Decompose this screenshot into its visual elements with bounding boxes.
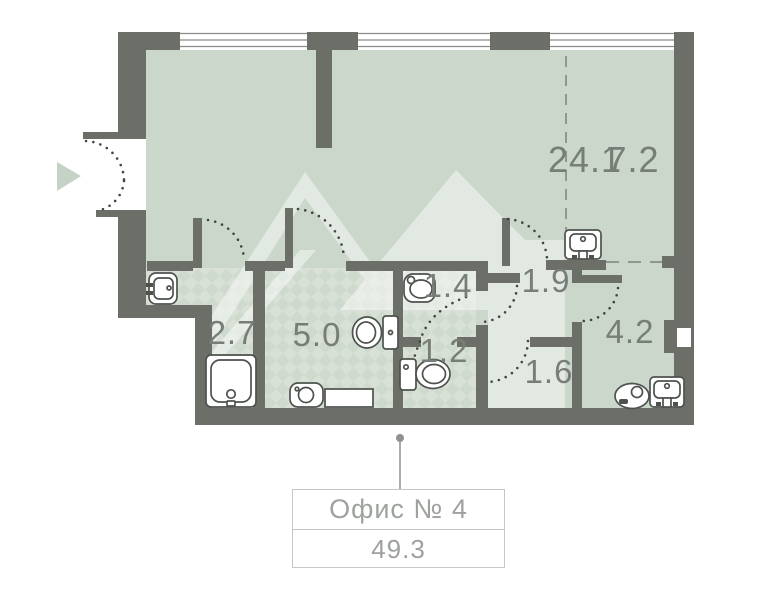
- wall-segment: [572, 275, 622, 283]
- room-label-5-0: 5.0: [293, 316, 342, 353]
- floor-plan-page: 24.1 7.2 2.7 5.0 1.4 1.2 1.9 1.6 4.2 Офи…: [0, 0, 760, 600]
- entrance-jamb-bottom: [96, 210, 146, 217]
- sink-tap: [408, 277, 415, 284]
- sink-pedestal: [579, 251, 587, 259]
- sink-tap: [146, 291, 153, 295]
- washer-dial: [295, 387, 299, 391]
- washer-drum: [299, 388, 314, 403]
- wall-1-9-1-6: [530, 337, 572, 347]
- counter-5-0: [325, 389, 373, 407]
- unit-label-box: Офис № 4 49.3: [292, 489, 505, 568]
- door-leaf: [193, 218, 202, 268]
- sink-icon-4-2: [650, 377, 684, 407]
- sink-mount: [673, 402, 678, 406]
- wall-segment: [662, 256, 676, 268]
- sink-mount: [656, 402, 661, 406]
- shower-tray-icon: [206, 355, 256, 407]
- toilet-bowl-inner: [357, 322, 376, 343]
- wall-pilaster: [664, 320, 677, 353]
- wall-left-lower: [118, 213, 146, 312]
- washer-icon-4-2: [615, 384, 649, 409]
- sink-tap: [665, 384, 670, 389]
- room-label-1-4: 1.4: [424, 267, 473, 304]
- window: [180, 32, 307, 50]
- sink-mount: [572, 255, 577, 259]
- washer-body: [615, 384, 649, 409]
- unit-name: Офис № 4: [293, 490, 504, 530]
- outside-mask: [100, 318, 195, 430]
- door-leaf: [502, 218, 510, 266]
- wall-bottom: [195, 408, 694, 425]
- wall-niche: [677, 328, 691, 347]
- wall-segment: [482, 273, 520, 283]
- toilet-button: [389, 331, 393, 335]
- wall-right: [674, 32, 694, 425]
- room-label-1-6: 1.6: [525, 353, 574, 390]
- entrance-arrow-icon: [57, 162, 81, 191]
- entrance-door-arc: [86, 141, 124, 180]
- washer-drum: [632, 387, 643, 398]
- wall-1-6-4-2: [572, 322, 582, 408]
- window: [550, 32, 675, 50]
- sink-drain: [167, 286, 171, 290]
- sink-tap: [146, 283, 153, 287]
- sink-icon-7-2: [565, 230, 601, 259]
- washer-detail: [619, 399, 628, 404]
- wall-left-upper: [118, 32, 146, 135]
- washer-icon-5-0: [290, 383, 323, 407]
- leader: [396, 434, 404, 489]
- toilet-icon-5-0: [353, 316, 399, 349]
- entrance-door-arc: [96, 181, 124, 211]
- wall-segment: [147, 261, 193, 271]
- windows: [180, 32, 675, 50]
- room-label-7-2: 7.2: [606, 139, 659, 180]
- window: [358, 32, 490, 50]
- wall-segment: [490, 32, 550, 50]
- toilet-button: [404, 365, 408, 369]
- room-label-4-2: 4.2: [606, 313, 655, 350]
- shower-drain-base: [227, 401, 235, 406]
- room-label-2-7: 2.7: [208, 314, 257, 351]
- toilet-tank: [400, 359, 416, 390]
- sink-tap: [581, 237, 586, 242]
- sink-icon-niche: [146, 273, 177, 304]
- unit-area-value: 49.3: [293, 530, 504, 568]
- sink-mount: [589, 255, 594, 259]
- room-label-1-2: 1.2: [420, 332, 469, 369]
- wall-segment: [307, 32, 358, 50]
- shower-drain: [227, 390, 235, 398]
- door-leaf: [285, 208, 293, 268]
- sink-pedestal: [663, 398, 671, 407]
- leader-dot: [396, 434, 404, 442]
- wall-stub-top: [316, 50, 332, 148]
- wall-segment: [403, 337, 421, 347]
- room-label-1-9: 1.9: [522, 262, 571, 299]
- entrance-jamb-top: [83, 132, 146, 139]
